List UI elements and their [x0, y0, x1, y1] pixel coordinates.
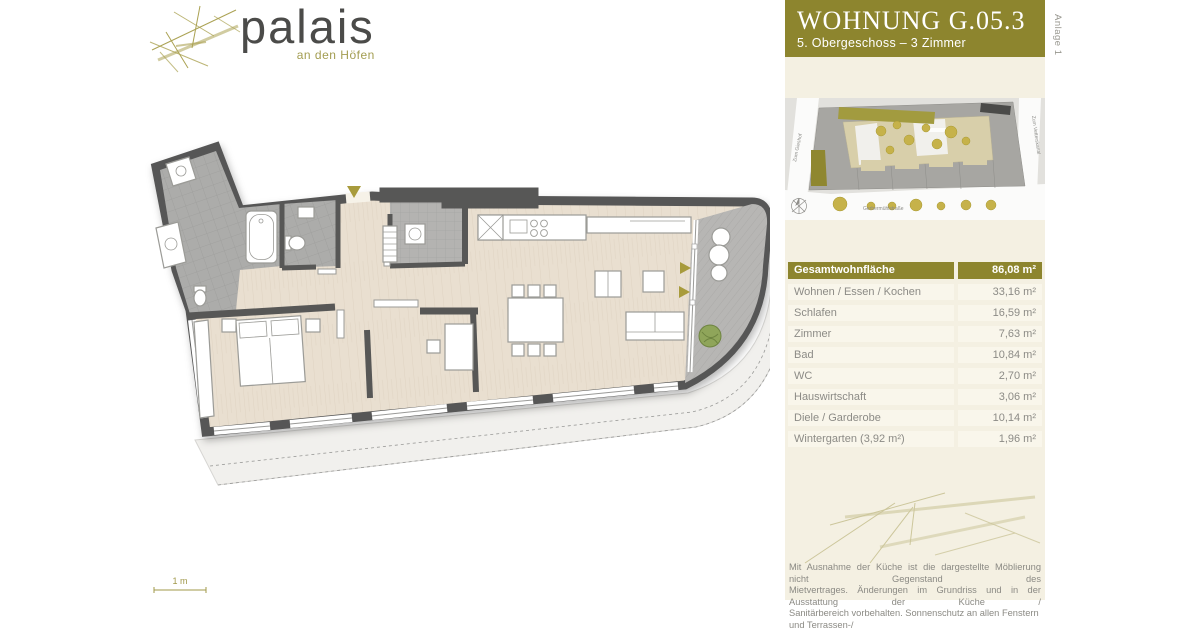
nightstand — [306, 319, 320, 332]
utility-room-floor — [390, 200, 465, 266]
area-table: Gesamtwohnfläche 86,08 m² Wohnen / Essen… — [788, 262, 1042, 452]
row-value: 7,63 m² — [958, 326, 1042, 342]
bed — [236, 316, 305, 386]
row-value: 33,16 m² — [958, 284, 1042, 300]
washing-machine — [405, 224, 425, 244]
terrace-strip — [861, 160, 885, 171]
entrance — [346, 186, 370, 199]
info-panel: WOHNUNG G.05.3 5. Obergeschoss – 3 Zimme… — [785, 0, 1045, 600]
annex-label: Anlage 1 — [1052, 14, 1063, 56]
table-row: Wohnen / Essen / Kochen33,16 m² — [788, 284, 1042, 300]
floor-plan — [140, 140, 770, 500]
disclaimer-line: Mit Ausnahme der Küche ist die dargestel… — [789, 562, 1041, 585]
sofa — [626, 312, 684, 340]
wc-sink — [298, 207, 314, 218]
disclaimer-line: Sanitärbereich vorbehalten. Sonnenschutz… — [789, 608, 1041, 631]
row-value: 1,96 m² — [958, 431, 1042, 447]
row-value: 2,70 m² — [958, 368, 1042, 384]
courtyard-path — [913, 119, 948, 156]
table-row: Hauswirtschaft3,06 m² — [788, 389, 1042, 405]
utility-shelf — [383, 226, 397, 262]
row-label: Diele / Garderobe — [788, 410, 954, 426]
logo-sketch-icon — [148, 2, 244, 74]
table-row: Bad10,84 m² — [788, 347, 1042, 363]
row-label: Schlafen — [788, 305, 954, 321]
nightstand — [222, 319, 236, 332]
disclaimer-line: Mietvertrages. Änderungen im Grundriss u… — [789, 585, 1041, 608]
terrace-strip — [895, 158, 919, 169]
toilet-bath — [194, 286, 206, 306]
row-label: Wohnen / Essen / Kochen — [788, 284, 954, 300]
total-area-value: 86,08 m² — [958, 262, 1042, 279]
plant — [699, 325, 721, 347]
logo-name: palais — [240, 2, 375, 52]
row-label: Zimmer — [788, 326, 954, 342]
wintergarden-seats — [709, 228, 730, 281]
row-value: 16,59 m² — [958, 305, 1042, 321]
brand-logo: palais an den Höfen — [148, 2, 375, 74]
desk-chair — [427, 340, 440, 353]
table-row: Schlafen16,59 m² — [788, 305, 1042, 321]
site-plan-map: Gerbermühlstraße Zum Gieshof Zum Vetters… — [785, 98, 1045, 220]
disclaimer-text: Mit Ausnahme der Küche ist die dargestel… — [789, 562, 1041, 632]
decorative-sketch — [785, 455, 1045, 567]
kitchen-island — [587, 217, 691, 233]
terrace-strip — [929, 156, 953, 167]
total-area-label: Gesamtwohnfläche — [788, 262, 954, 279]
row-label: Hauswirtschaft — [788, 389, 954, 405]
wc-toilet — [285, 236, 305, 250]
kitchen-counter — [478, 215, 586, 240]
row-label: WC — [788, 368, 954, 384]
row-label: Wintergarten (3,92 m²) — [788, 431, 954, 447]
terrace-strip — [963, 154, 987, 165]
apartment-subtitle: 5. Obergeschoss – 3 Zimmer — [797, 36, 1033, 50]
apartment-title: WOHNUNG G.05.3 — [797, 8, 1033, 34]
highlighted-wing-left — [811, 150, 827, 186]
kitchen-sink — [510, 220, 527, 233]
row-value: 10,14 m² — [958, 410, 1042, 426]
table-row: WC2,70 m² — [788, 368, 1042, 384]
street-label-bottom: Gerbermühlstraße — [863, 206, 904, 212]
table-row: Diele / Garderobe10,14 m² — [788, 410, 1042, 426]
row-value: 10,84 m² — [958, 347, 1042, 363]
pillow — [239, 321, 267, 338]
scale-bar: 1 m — [152, 576, 208, 596]
table-row: Zimmer7,63 m² — [788, 326, 1042, 342]
side-table — [643, 271, 664, 292]
dining-set — [508, 285, 563, 356]
desk — [445, 324, 473, 370]
table-row: Wintergarten (3,92 m²)1,96 m² — [788, 431, 1042, 447]
scale-bar-line — [152, 586, 208, 594]
row-value: 3,06 m² — [958, 389, 1042, 405]
table-header-row: Gesamtwohnfläche 86,08 m² — [788, 262, 1042, 279]
pillow — [271, 319, 299, 336]
row-label: Bad — [788, 347, 954, 363]
bathtub — [246, 211, 277, 263]
dining-table — [508, 298, 563, 342]
scale-bar-label: 1 m — [152, 576, 208, 586]
apartment-title-block: WOHNUNG G.05.3 5. Obergeschoss – 3 Zimme… — [785, 0, 1045, 57]
